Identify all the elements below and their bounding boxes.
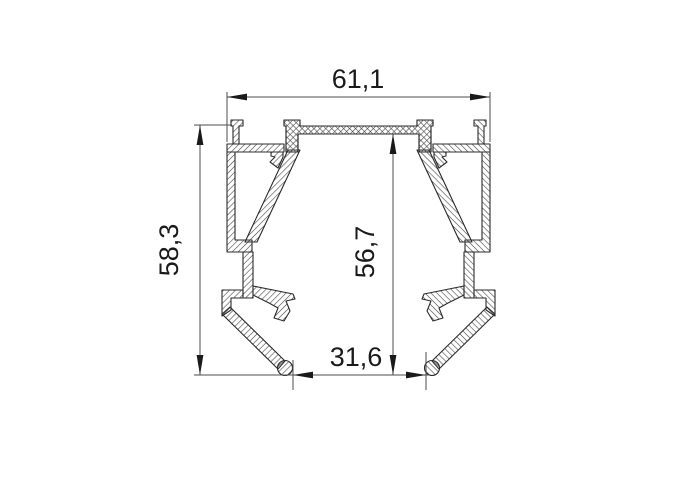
dimension-inner-height: 56,7 bbox=[350, 134, 396, 375]
dimension-value-overall-width: 61,1 bbox=[332, 64, 385, 94]
arrow-right-icon bbox=[406, 372, 426, 379]
dimension-value-bottom-opening: 31,6 bbox=[330, 342, 383, 372]
arrow-left-icon bbox=[227, 94, 247, 101]
technical-drawing: 61,1 58,3 56,7 31,6 bbox=[0, 0, 700, 494]
arrow-up-icon bbox=[390, 134, 397, 154]
dimension-value-inner-height: 56,7 bbox=[350, 226, 380, 279]
arrow-left-icon bbox=[293, 372, 313, 379]
arrow-down-icon bbox=[197, 355, 204, 375]
arrow-down-icon bbox=[390, 355, 397, 375]
arrow-right-icon bbox=[470, 94, 490, 101]
arrow-up-icon bbox=[197, 125, 204, 145]
dimension-bottom-opening: 31,6 bbox=[293, 342, 426, 390]
drawing-canvas: 61,1 58,3 56,7 31,6 bbox=[0, 0, 700, 494]
dimension-overall-height: 58,3 bbox=[154, 125, 232, 375]
dimension-value-overall-height: 58,3 bbox=[154, 224, 184, 277]
